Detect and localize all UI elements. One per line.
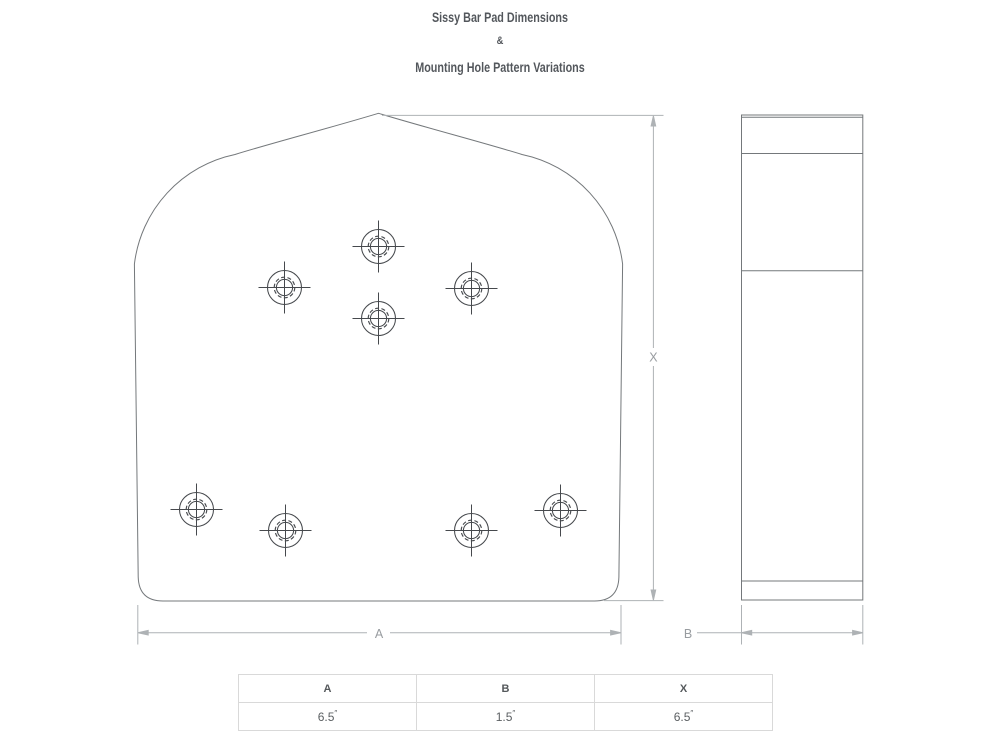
- svg-text:X: X: [649, 351, 658, 365]
- svg-text:A: A: [375, 627, 384, 641]
- svg-text:B: B: [684, 627, 692, 641]
